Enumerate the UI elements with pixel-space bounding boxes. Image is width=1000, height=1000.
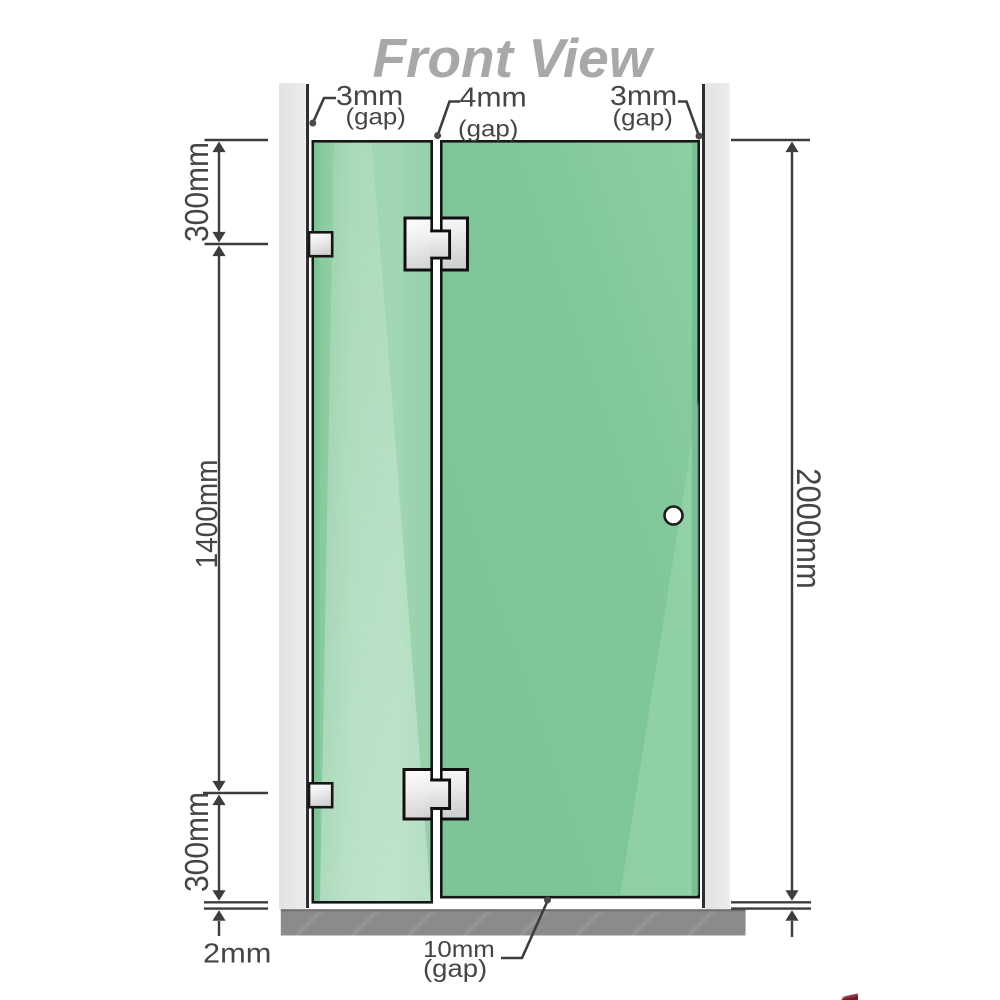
svg-text:300mm: 300mm — [178, 142, 216, 242]
svg-text:2000mm: 2000mm — [790, 468, 828, 589]
svg-text:4mm: 4mm — [460, 83, 527, 113]
svg-text:2mm: 2mm — [203, 938, 271, 969]
svg-text:1400mm: 1400mm — [190, 460, 225, 569]
svg-text:Front View: Front View — [372, 27, 654, 89]
svg-text:(gap): (gap) — [423, 954, 487, 983]
svg-text:(gap): (gap) — [346, 105, 406, 131]
svg-text:(gap): (gap) — [613, 106, 673, 132]
svg-text:300mm: 300mm — [178, 792, 216, 892]
svg-text:(gap): (gap) — [458, 117, 518, 143]
